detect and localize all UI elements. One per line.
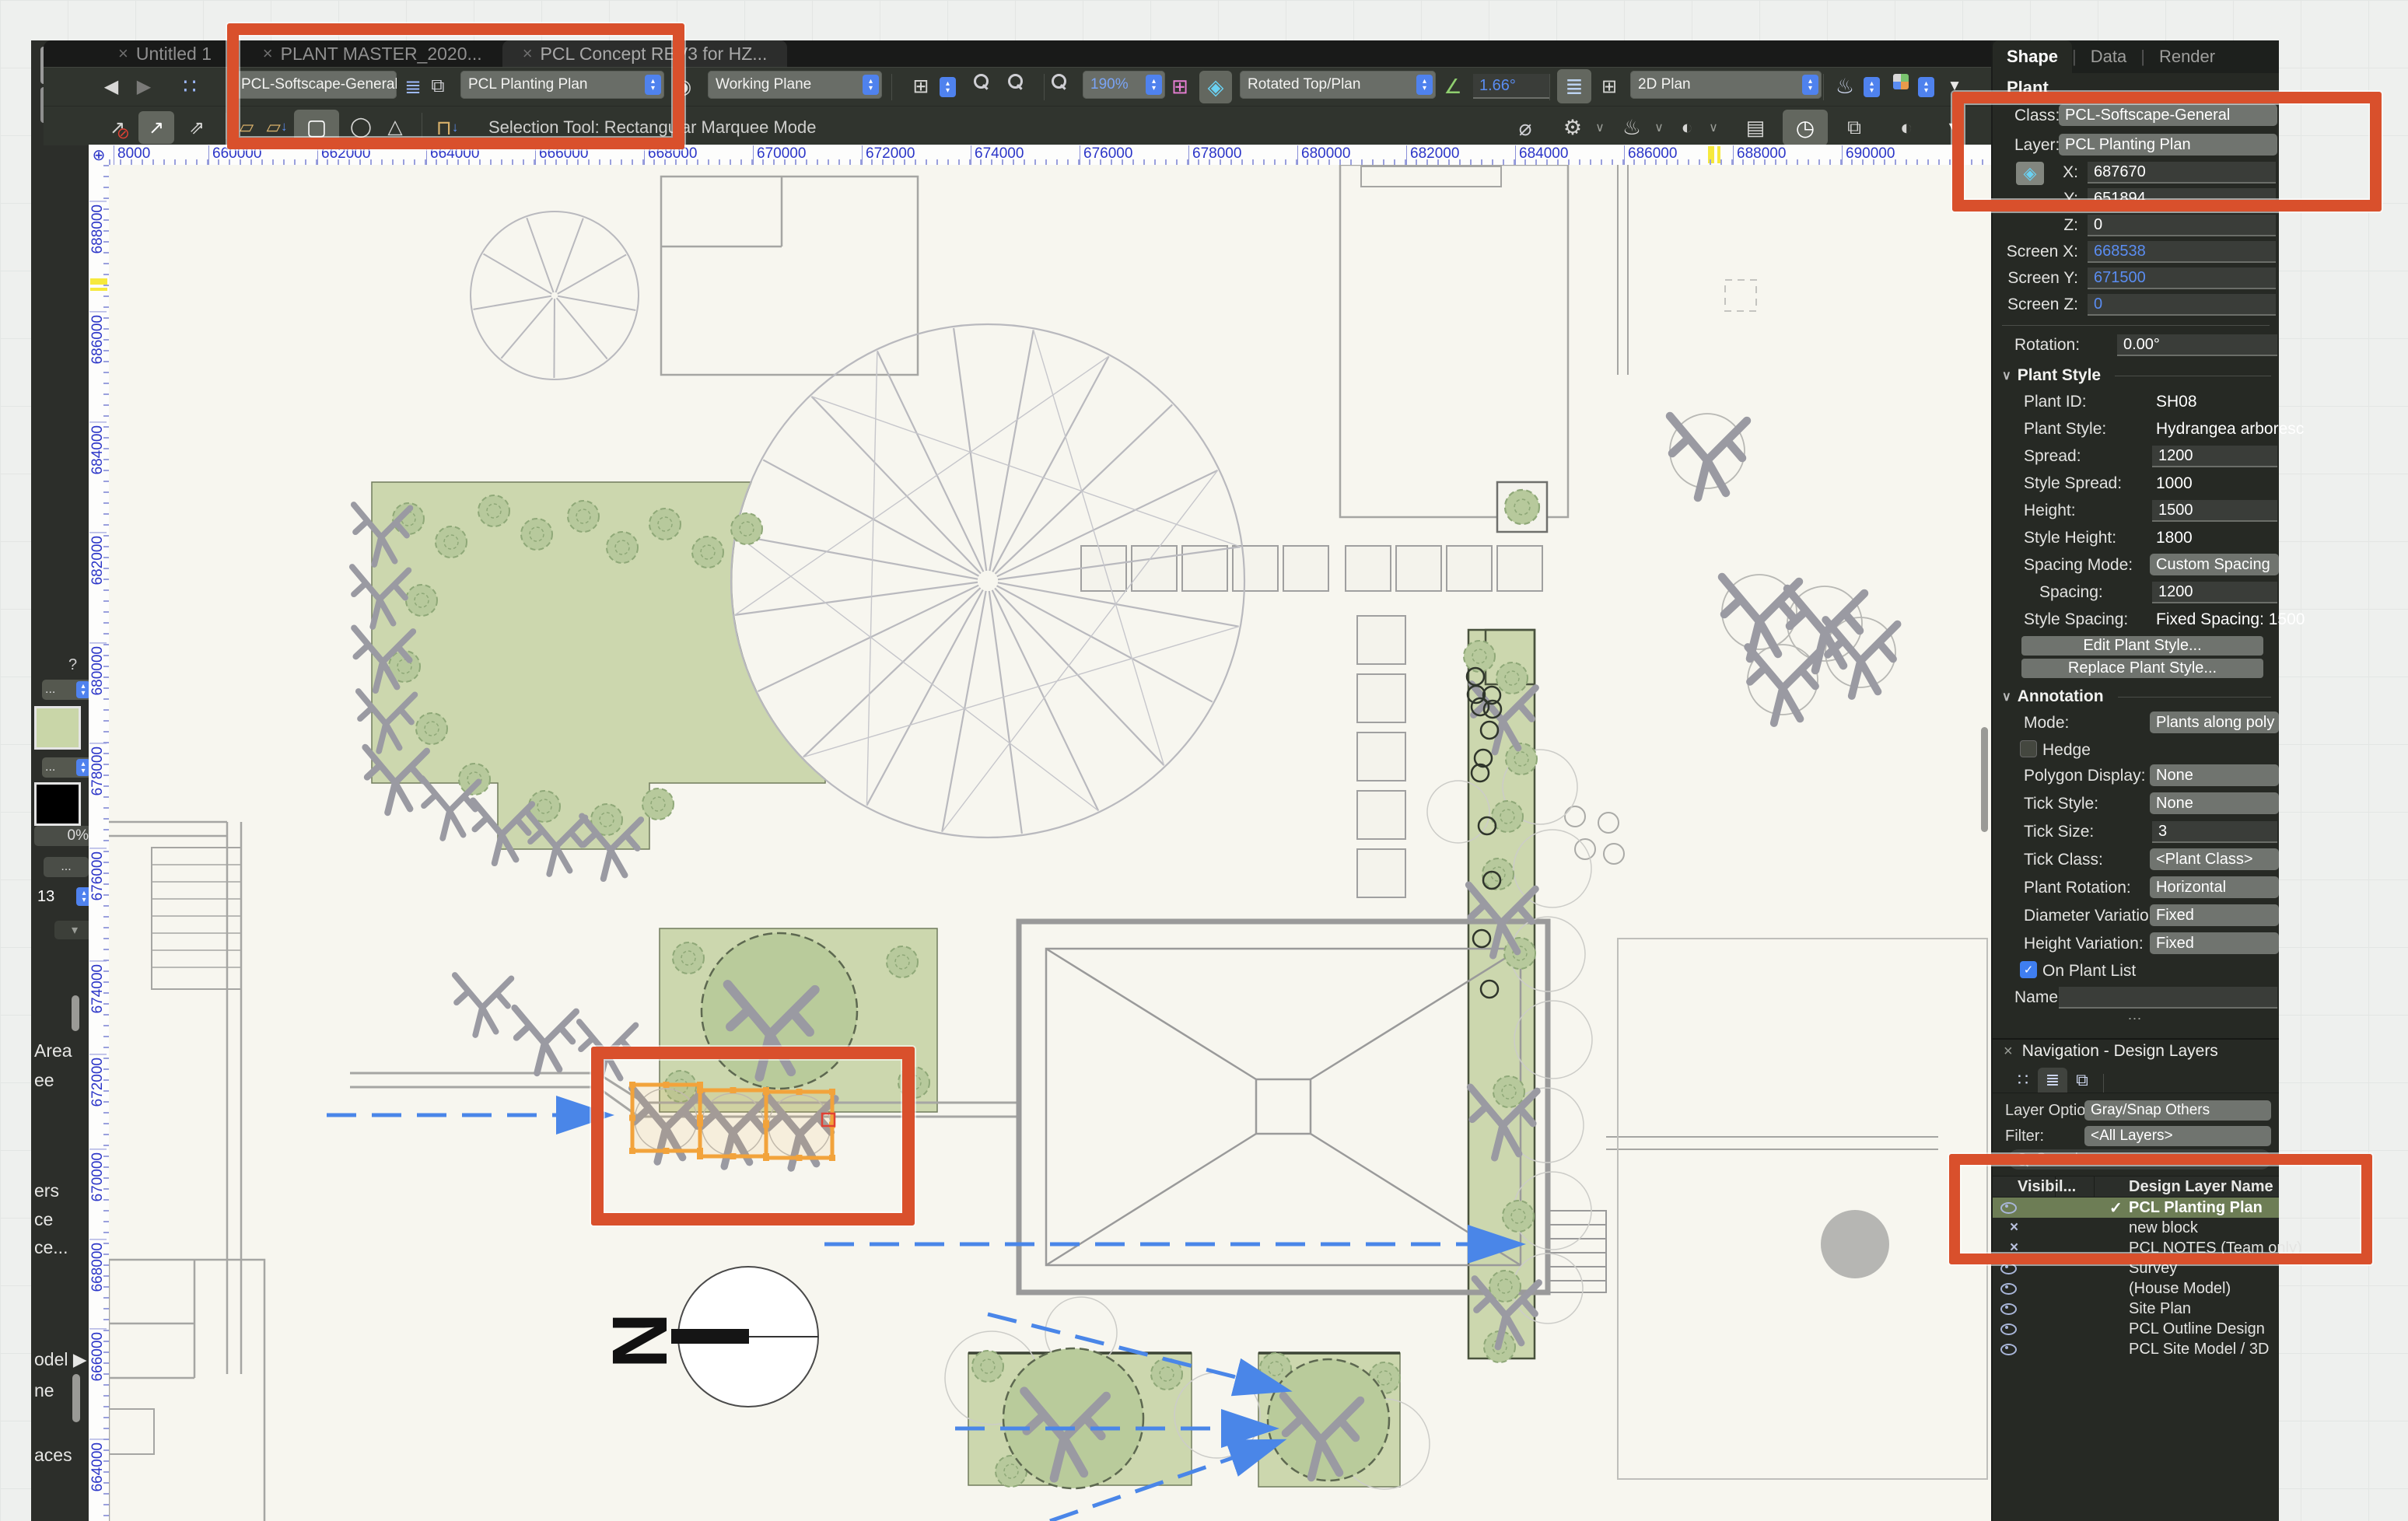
property-value: 1800 [2156, 529, 2193, 547]
filter-label: Filter: [2005, 1128, 2044, 1145]
property-row: Spacing Mode:Custom Spacing [1993, 551, 2279, 579]
ruler-label: 8000 [114, 145, 150, 165]
property-value: Hydrangea arboresc [2156, 420, 2304, 439]
navigation-tab-bar: ∷ ≣ ⧉ [1993, 1063, 2279, 1093]
zoom-level-value: 190% [1090, 76, 1129, 93]
stepper-icon[interactable] [863, 75, 879, 95]
left-palette-item[interactable]: ce [34, 1209, 53, 1230]
building-outlines [109, 165, 1938, 1521]
design-layer-name[interactable]: PCL Outline Design [2129, 1320, 2265, 1338]
property-value: Fixed Spacing: 1500 [2156, 610, 2305, 629]
property-dropdown[interactable]: Fixed [2150, 932, 2279, 954]
zoom-icon[interactable] [1052, 74, 1067, 89]
axes-icon[interactable]: ∠ [1439, 72, 1467, 100]
close-icon[interactable]: × [118, 44, 128, 64]
property-row: Tick Class:<Plant Class> [1993, 846, 2279, 874]
quad-squares-icon [1893, 74, 1909, 89]
ruler-label: 676000 [1080, 145, 1132, 165]
north-arrow: N [597, 1267, 818, 1407]
property-field[interactable]: 1200 [2152, 446, 2277, 467]
canvas-scrollbar-thumb[interactable] [1981, 727, 1988, 832]
property-label: Height: [2024, 502, 2076, 520]
design-layer-row[interactable]: PCL Site Model / 3D [1993, 1339, 2279, 1359]
stepper-icon[interactable] [1146, 75, 1162, 95]
property-label: Spacing Mode: [2024, 556, 2133, 575]
property-field[interactable]: 3 [2152, 821, 2277, 843]
ruler-label: 684000 [89, 421, 107, 474]
ruler-label: 678000 [89, 743, 107, 795]
small-circles-cluster [1565, 806, 1624, 864]
property-value: 1000 [2156, 474, 2193, 493]
rotation-angle-value: 1.66° [1479, 77, 1516, 95]
annotation-rect-layer-row [1949, 1154, 2372, 1264]
chevron-down-icon[interactable]: ∨ [1591, 117, 1608, 138]
coordinate-field[interactable]: 0 [2088, 294, 2276, 316]
coordinate-field[interactable]: 668538 [2088, 241, 2276, 263]
zoom-level-dropdown[interactable]: 190% [1083, 71, 1165, 99]
property-label: Plant Style: [2024, 420, 2106, 439]
terrace-outline [1618, 939, 1987, 1479]
ruler-label: 682000 [89, 532, 107, 585]
crosshair-icon: ⊕ [93, 145, 106, 165]
left-palette-item[interactable]: ne [34, 1380, 54, 1401]
design-layer-name[interactable]: Site Plan [2129, 1300, 2191, 1318]
tab-shape[interactable]: Shape [1993, 40, 2072, 73]
loupe-icon [1052, 74, 1067, 89]
ruler-label: 680000 [89, 642, 107, 695]
layer-options-value: Gray/Snap Others [2091, 1102, 2210, 1119]
pen-style-dropdown[interactable]: ... [42, 757, 93, 778]
replace-plant-style-button[interactable]: Replace Plant Style... [2021, 659, 2263, 678]
opacity-value: 0% [68, 827, 89, 844]
site-plan-drawing: N [109, 165, 1991, 1521]
single-object-mode-active[interactable]: ↗ [138, 111, 174, 144]
ruler-label: 678000 [1188, 145, 1241, 165]
property-label: Mode: [2024, 714, 2069, 733]
plan-mode-dropdown[interactable]: 2D Plan [1630, 71, 1822, 99]
coordinate-label: Screen X: [2007, 243, 2078, 261]
nodes-icon: ∷ [2018, 1070, 2028, 1090]
property-row: Style Spacing:Fixed Spacing: 1500 [1993, 606, 2279, 633]
design-layer-row[interactable]: Site Plan [1993, 1299, 2279, 1319]
tab-data[interactable]: Data [2077, 40, 2140, 73]
loupe-icon [974, 74, 989, 89]
ruler-highlight-mark [90, 288, 107, 291]
chevron-down-icon[interactable]: ∨ [1705, 117, 1722, 138]
drawing-canvas[interactable]: N [109, 165, 1991, 1521]
eye-icon[interactable] [2000, 1323, 2017, 1335]
property-label: Style Spread: [2024, 474, 2122, 493]
tab-render[interactable]: Render [2145, 40, 2229, 73]
rotation-angle-field[interactable]: 1.66° [1473, 74, 1549, 99]
multi-object-mode[interactable]: ⇗ [179, 113, 215, 142]
checkbox-label: Hedge [2042, 741, 2091, 760]
gray-circle-feature [1821, 1210, 1889, 1278]
rotation-label: Rotation: [2014, 336, 2080, 355]
ruler-label: 676000 [89, 848, 107, 900]
property-label: Plant Rotation: [2024, 879, 2131, 897]
sheet-page-icon[interactable]: ⧉ [1840, 113, 1868, 142]
document-tab-title: Untitled 1 [136, 44, 212, 65]
ruler-label: 674000 [89, 960, 107, 1013]
render-teapot-icon[interactable]: ♨ [1615, 113, 1649, 142]
ruler-label: 664000 [89, 1439, 107, 1491]
fill-style-dots: ... [45, 683, 55, 697]
ruler-label: 688000 [1733, 145, 1786, 165]
property-row: Spacing:1200 [1993, 579, 2279, 606]
contrast-circle-icon[interactable]: ◐ [1890, 113, 1923, 142]
design-layer-name[interactable]: PCL Site Model / 3D [2129, 1341, 2269, 1358]
ruler-label: 680000 [1297, 145, 1350, 165]
coordinate-row: Screen Z:0 [1993, 291, 2279, 317]
stepper-icon[interactable] [1864, 77, 1880, 97]
stepper-icon[interactable] [1416, 75, 1433, 95]
ruler-label: 672000 [862, 145, 915, 165]
coordinate-field[interactable]: 671500 [2088, 267, 2276, 289]
plant-style-section-header[interactable]: ∨Plant Style [1993, 360, 2279, 388]
annotation-rect-class-layer [1952, 92, 2382, 212]
close-icon[interactable]: × [2004, 1043, 2013, 1061]
stepper-icon[interactable] [940, 77, 956, 97]
property-field[interactable]: 1500 [2152, 500, 2277, 522]
vertical-ruler[interactable]: 6880006860006840006820006800006780006760… [89, 165, 110, 1521]
checkbox-label: On Plant List [2042, 962, 2136, 981]
design-layer-row[interactable]: PCL Outline Design [1993, 1319, 2279, 1339]
coordinate-row: Screen X:668538 [1993, 238, 2279, 264]
filter-value: <All Layers> [2091, 1128, 2173, 1145]
property-label: Tick Size: [2024, 823, 2094, 841]
property-row: Plant ID:SH08 [1993, 388, 2279, 415]
property-row: Height Variation:Fixed [1993, 930, 2279, 958]
autosave-clock-icon-active[interactable]: ◷ [1783, 110, 1828, 145]
left-palette-item[interactable]: ce... [34, 1237, 68, 1258]
ruler-label: 682000 [1406, 145, 1459, 165]
ruler-label: 686000 [89, 311, 107, 364]
coordinate-value: 0 [2094, 216, 2102, 234]
property-label: Tick Class: [2024, 851, 2103, 869]
fit-to-objects-icon[interactable] [974, 74, 989, 89]
line-type-dots: ... [61, 860, 71, 874]
property-label: Diameter Variation: [2024, 907, 2162, 925]
fill-style-dropdown[interactable]: ... [42, 680, 93, 700]
left-palette-item[interactable]: ers [34, 1180, 59, 1201]
no-interactive-scaling-mode[interactable]: ↗ ⊘ [101, 113, 134, 142]
page-panes-icon[interactable]: ⊞ [1596, 72, 1622, 100]
flyout-arrow-icon: ▾ [72, 922, 78, 938]
property-dropdown[interactable]: <Plant Class> [2150, 848, 2279, 870]
ruler-label: 672000 [89, 1054, 107, 1107]
coordinate-label: Screen Z: [2007, 295, 2078, 314]
navigation-title: Navigation - Design Layers [2022, 1042, 2218, 1061]
loupe-icon [1008, 74, 1024, 89]
ruler-highlight-mark [1708, 146, 1714, 163]
property-row: Plant Style:Hydrangea arboresc [1993, 415, 2279, 442]
ruler-label: 670000 [89, 1149, 107, 1201]
forward-button[interactable]: ▶ [131, 72, 157, 100]
property-dropdown[interactable]: None [2150, 764, 2279, 786]
checkbox-row: ✓On Plant List [1993, 958, 2279, 983]
property-row: Tick Style:None [1993, 790, 2279, 818]
nav-tab-sheet-layers[interactable]: ⧉ [2067, 1068, 2097, 1093]
eye-icon[interactable] [2000, 1303, 2017, 1315]
name-label: Name: [2014, 988, 2063, 1007]
ruler-label: 674000 [971, 145, 1024, 165]
property-dropdown[interactable]: None [2150, 792, 2279, 814]
checkbox[interactable] [2020, 740, 2037, 757]
property-dropdown[interactable]: Fixed [2150, 904, 2279, 926]
eye-icon[interactable] [2000, 1344, 2017, 1355]
property-row: Plant Rotation:Horizontal [1993, 874, 2279, 902]
checkbox-row: Hedge [1993, 737, 2279, 762]
ruler-label: 684000 [1515, 145, 1568, 165]
document-tab[interactable]: × Untitled 1 [98, 40, 232, 67]
coordinate-field[interactable]: 0 [2088, 215, 2276, 236]
attributes-help[interactable]: ? [68, 656, 77, 674]
annotation-rect-toolbar [227, 23, 684, 149]
annotation-rect-plants [591, 1047, 915, 1226]
coordinate-label: Z: [2063, 216, 2078, 235]
filter-dropdown[interactable]: <All Layers> [2084, 1126, 2271, 1146]
name-field[interactable] [2059, 987, 2277, 1009]
line-type-button[interactable]: ... [44, 857, 89, 877]
property-label: Height Variation: [2024, 935, 2144, 953]
ruler-label: 686000 [1624, 145, 1677, 165]
line-weight-value: 13 [37, 888, 54, 906]
view-orientation-dropdown[interactable]: Rotated Top/Plan [1240, 71, 1436, 99]
page-corner-marker [1725, 280, 1756, 311]
palette-resize-handle[interactable]: ⋯ [1993, 1011, 2279, 1027]
coordinate-value: 671500 [2094, 269, 2146, 287]
stepper-icon[interactable] [1918, 77, 1934, 97]
property-dropdown[interactable]: Plants along poly ed [2150, 712, 2279, 733]
annotation-section-header[interactable]: ∨Annotation [1993, 681, 2279, 709]
flyover-tool-icon[interactable]: ◈ [1199, 71, 1232, 103]
property-row: Style Spread:1000 [1993, 470, 2279, 497]
unified-view-icon[interactable]: ≣ [1557, 69, 1591, 103]
opacity-field[interactable]: 0% [34, 826, 92, 846]
desktop: ✕ ✎ ? ... ... 0% ... 13 ▾ Areaeeerscece.… [0, 0, 2408, 1521]
ruler-label: 688000 [89, 201, 107, 253]
left-palette-item[interactable]: aces [34, 1445, 72, 1466]
snap-loupe-icon[interactable]: ⌀ [1507, 113, 1543, 142]
chevron-down-icon[interactable]: ∨ [1650, 117, 1668, 138]
fill-color-swatch[interactable] [34, 706, 81, 750]
property-dropdown[interactable]: Custom Spacing [2150, 554, 2279, 575]
property-row: Style Height:1800 [1993, 524, 2279, 551]
pen-style-dots: ... [45, 760, 55, 774]
property-label: Style Height: [2024, 529, 2116, 547]
property-row: Mode:Plants along poly ed [1993, 709, 2279, 737]
ruler-highlight-mark [90, 278, 107, 285]
render-mode-teapot-icon[interactable]: ♨ [1829, 72, 1860, 100]
render-style-icon[interactable] [1893, 74, 1909, 89]
plan-mode-value: 2D Plan [1638, 76, 1691, 93]
property-field[interactable]: 1200 [2152, 582, 2277, 603]
ruler-label: 666000 [89, 1328, 107, 1381]
property-row: Spread:1200 [1993, 442, 2279, 470]
property-label: Polygon Display: [2024, 767, 2145, 785]
ruler-highlight-mark [1717, 146, 1720, 163]
navigation-palette: × Navigation - Design Layers ∷ ≣ ⧉ Layer… [1991, 1038, 2279, 1521]
left-palette-item[interactable]: ee [34, 1070, 54, 1091]
design-layer-name[interactable]: (House Model) [2129, 1280, 2231, 1298]
property-label: Plant ID: [2024, 393, 2087, 411]
back-button[interactable]: ◀ [98, 72, 124, 100]
property-label: Spacing: [2039, 583, 2103, 602]
coordinate-row: Z:0 [1993, 212, 2279, 238]
property-label: Tick Style: [2024, 795, 2098, 813]
design-layer-row[interactable]: (House Model) [1993, 1278, 2279, 1299]
left-palette-item[interactable]: odel ▶ [34, 1349, 87, 1370]
ruler-label: 668000 [89, 1239, 107, 1292]
pen-color-swatch[interactable] [34, 782, 81, 826]
canopy-tree-small [471, 212, 639, 379]
settings-gear-icon[interactable]: ⚙ [1557, 113, 1588, 142]
coordinate-label: Screen Y: [2007, 269, 2078, 288]
clip-cube-icon[interactable]: ◐ [1671, 113, 1703, 142]
left-palette-item[interactable]: Area [34, 1040, 72, 1061]
left-dock [31, 40, 92, 1521]
oip-tab-bar: Shape | Data | Render [1993, 40, 2279, 73]
disclosure-icon: ∨ [2002, 368, 2011, 383]
page-icon: ⧉ [2076, 1070, 2088, 1090]
ruler-origin-button[interactable]: ⊕ [89, 145, 110, 166]
multiple-views-icon[interactable]: ⊞ [1165, 72, 1195, 100]
property-dropdown[interactable]: Horizontal [2150, 876, 2279, 898]
edit-plant-style-button[interactable]: Edit Plant Style... [2021, 636, 2263, 656]
rotation-value: 0.00° [2123, 336, 2160, 354]
rotation-field[interactable]: 0.00° [2117, 334, 2277, 356]
view-orientation-value: Rotated Top/Plan [1248, 76, 1360, 93]
ruler-label: 670000 [753, 145, 806, 165]
left-scrollbar-thumb[interactable] [72, 1374, 80, 1422]
working-plane-dropdown[interactable]: Working Plane [708, 71, 882, 99]
layers-icon: ≣ [2046, 1070, 2060, 1090]
checkbox[interactable]: ✓ [2020, 961, 2037, 978]
coordinate-value: 668538 [2094, 243, 2146, 260]
property-row: Diameter Variation:Fixed [1993, 902, 2279, 930]
stepper-icon[interactable] [1802, 75, 1818, 95]
working-plane-value: Working Plane [716, 76, 811, 93]
disclosure-icon: ∨ [2002, 689, 2011, 705]
view-visibility-icon[interactable]: ⊞ [905, 72, 936, 100]
property-row: Polygon Display:None [1993, 762, 2279, 790]
property-label: Style Spacing: [2024, 610, 2128, 629]
property-value: SH08 [2156, 393, 2197, 411]
ruler-label: 690000 [1842, 145, 1895, 165]
nav-tab-saved-views[interactable]: ∷ [2008, 1068, 2038, 1093]
layer-options-dropdown[interactable]: Gray/Snap Others [2084, 1100, 2271, 1121]
eye-icon[interactable] [2000, 1283, 2017, 1295]
saved-views-icon[interactable]: ∷ [173, 72, 207, 100]
line-weight-stepper[interactable]: 13 [34, 886, 95, 907]
prohibit-icon: ⊘ [117, 124, 130, 143]
property-row: Height:1500 [1993, 497, 2279, 524]
coordinate-value: 0 [2094, 295, 2102, 313]
fit-to-page-icon[interactable] [1008, 74, 1024, 89]
left-scrollbar-thumb[interactable] [72, 995, 79, 1031]
nav-tab-design-layers[interactable]: ≣ [2038, 1068, 2067, 1093]
dimension-ruler-icon[interactable]: ▤ [1736, 113, 1775, 142]
property-row: Tick Size:3 [1993, 818, 2279, 846]
property-label: Spread: [2024, 447, 2081, 466]
svg-text:N: N [597, 1313, 684, 1369]
coordinate-row: Screen Y:671500 [1993, 264, 2279, 291]
